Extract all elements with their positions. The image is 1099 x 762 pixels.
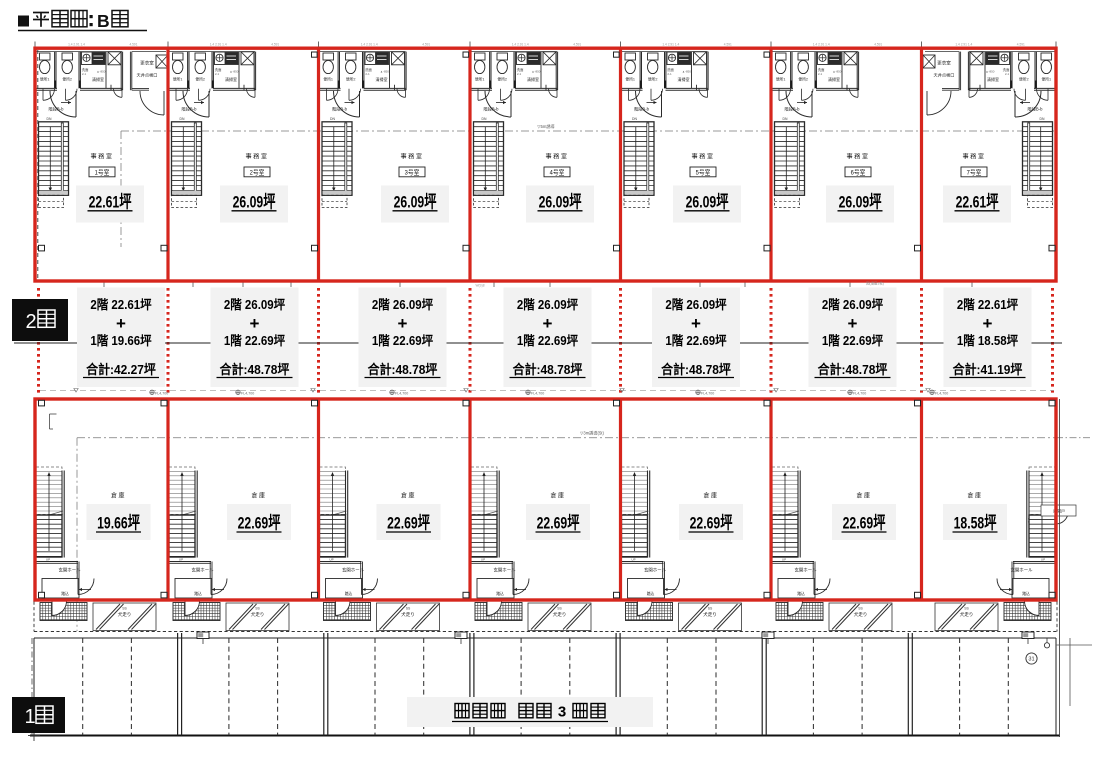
svg-text:便所1: 便所1 [173,77,183,82]
svg-text:4.591: 4.591 [422,43,430,47]
svg-text:犬走り: 犬走り [703,611,717,618]
svg-text:倉庫: 倉庫 [401,492,416,500]
svg-text:+: + [691,314,701,333]
svg-text:+: + [398,314,408,333]
svg-text:26.09坪: 26.09坪 [394,193,437,213]
svg-text:B: B [97,11,110,31]
svg-text:倉庫: 倉庫 [111,492,126,500]
svg-text:便所1: 便所1 [1041,77,1051,82]
svg-text:倉庫: 倉庫 [703,492,718,500]
svg-text:2階 26.09坪: 2階 26.09坪 [822,297,883,313]
svg-text:22.69坪: 22.69坪 [238,514,281,534]
svg-text:倉庫: 倉庫 [967,492,982,500]
svg-text:DN: DN [47,117,52,121]
svg-text:1.4 2.91 1.4: 1.4 2.91 1.4 [512,43,529,47]
svg-text:W(S)8: W(S)8 [475,284,484,288]
svg-text:4.591: 4.591 [573,43,581,47]
svg-text:1.4 2.91 1.4: 1.4 2.91 1.4 [662,43,679,47]
svg-text:便所1: 便所1 [625,77,635,82]
svg-text:階段B-b: 階段B-b [785,106,801,113]
svg-text:1階 22.69坪: 1階 22.69坪 [372,333,433,349]
svg-text:2-1: 2-1 [365,72,370,76]
svg-text:6号室: 6号室 [851,168,866,176]
svg-text:2-1: 2-1 [667,72,672,76]
svg-text:清掃室: 清掃室 [678,76,690,82]
svg-text:清掃室: 清掃室 [527,76,539,82]
svg-text:踏込: 踏込 [61,591,69,596]
svg-text:3: 3 [558,704,566,721]
svg-text:2階 26.09坪: 2階 26.09坪 [517,297,578,313]
svg-text:26.09坪: 26.09坪 [686,193,729,213]
svg-text:倉庫: 倉庫 [550,492,565,500]
svg-text:1階 22.69坪: 1階 22.69坪 [665,333,726,349]
svg-text:1: 1 [24,706,35,728]
svg-text:+: + [116,314,126,333]
svg-text:倉庫: 倉庫 [856,492,871,500]
svg-text:DN: DN [482,117,487,121]
svg-text:+: + [848,314,858,333]
svg-text:犬走り: 犬走り [118,611,132,618]
svg-text:2-1: 2-1 [517,72,522,76]
svg-text:2-1: 2-1 [215,72,220,76]
svg-text:26.09坪: 26.09坪 [233,193,276,213]
svg-text:▲-850: ▲-850 [833,69,842,73]
svg-text:FL4,700: FL4,700 [853,391,866,395]
svg-text:天井点検口: 天井点検口 [934,72,955,79]
svg-text:3号室: 3号室 [405,168,420,176]
svg-text:4.591: 4.591 [724,43,732,47]
svg-text:犬走り: 犬走り [553,611,567,618]
svg-text:踏込: 踏込 [647,591,655,596]
svg-text:UP: UP [179,558,183,562]
svg-text:便所2: 便所2 [497,77,507,82]
svg-text:▲-850: ▲-850 [230,69,239,73]
svg-text:便所2: 便所2 [648,77,658,82]
svg-text:清掃室: 清掃室 [92,76,104,82]
svg-text:SS: SS [964,607,969,611]
svg-text:+: + [250,314,260,333]
svg-text:22.61坪: 22.61坪 [956,193,999,213]
svg-text:洗面: 洗面 [82,67,89,72]
svg-text:▽5m誘導: ▽5m誘導 [537,123,554,130]
svg-text:犬走り: 犬走り [401,611,415,618]
svg-text:便所2: 便所2 [346,77,356,82]
svg-text:便所1: 便所1 [323,77,333,82]
svg-text:合計:48.78坪: 合計:48.78坪 [368,362,438,378]
svg-text:SS: SS [406,607,411,611]
svg-text:事務室: 事務室 [846,153,869,161]
svg-text:1.4 2.91 1.4: 1.4 2.91 1.4 [955,43,972,47]
svg-text:1号室: 1号室 [95,168,110,176]
svg-text:洗面: 洗面 [818,67,825,72]
svg-text:犬走り: 犬走り [251,611,265,618]
svg-text:合計:41.19坪: 合計:41.19坪 [953,362,1023,378]
svg-text:事務室: 事務室 [245,153,268,161]
svg-text:2階 26.09坪: 2階 26.09坪 [224,297,285,313]
svg-text:▲-850: ▲-850 [380,69,389,73]
svg-text:7号室: 7号室 [967,168,982,176]
svg-text:2階 26.09坪: 2階 26.09坪 [372,297,433,313]
svg-text:犬走り: 犬走り [960,611,974,618]
svg-text:1.4 2.91 1.4: 1.4 2.91 1.4 [210,43,227,47]
svg-text:犬走り: 犬走り [854,611,868,618]
svg-text:2号室: 2号室 [250,168,265,176]
svg-text:+: + [543,314,553,333]
svg-text:26.09坪: 26.09坪 [539,193,582,213]
svg-text:1階 18.58坪: 1階 18.58坪 [957,333,1018,349]
svg-text:UP: UP [782,558,786,562]
svg-text:合計:48.78坪: 合計:48.78坪 [661,362,731,378]
svg-text:18.58坪: 18.58坪 [954,514,997,534]
svg-text:4.591: 4.591 [271,43,279,47]
svg-text:便所2: 便所2 [195,77,205,82]
svg-text:合計:48.78坪: 合計:48.78坪 [818,362,888,378]
svg-text:洗面: 洗面 [667,67,674,72]
svg-text:UP: UP [46,558,50,562]
svg-text:2-1: 2-1 [818,72,823,76]
svg-text:4.591: 4.591 [874,43,882,47]
svg-text:洗面: 洗面 [215,67,222,72]
svg-text:清掃室: 清掃室 [376,76,388,82]
svg-text:FL4,700: FL4,700 [935,391,948,395]
svg-text:階段B-b: 階段B-b [182,106,198,113]
svg-text:清掃室: 清掃室 [225,76,237,82]
svg-text:玄関ホール: 玄関ホール [644,567,667,574]
svg-text:1階 22.69坪: 1階 22.69坪 [822,333,883,349]
svg-text:図(漫画1枚): 図(漫画1枚) [866,281,884,286]
svg-text:SS: SS [557,607,562,611]
svg-text:事務室: 事務室 [400,153,423,161]
svg-text:便所2: 便所2 [1019,77,1029,82]
svg-text:玄関ホール: 玄関ホール [494,567,517,574]
svg-text:31: 31 [1028,657,1034,663]
svg-text:▲-850: ▲-850 [986,69,995,73]
svg-text:4.591: 4.591 [130,43,138,47]
svg-text:天井点検口: 天井点検口 [137,72,158,79]
svg-text:踏込: 踏込 [1022,591,1030,596]
svg-text:事務室: 事務室 [90,153,113,161]
svg-text:22.69坪: 22.69坪 [690,514,733,534]
svg-text:2-1: 2-1 [1005,72,1010,76]
svg-text:玄関ホール: 玄関ホール [192,567,215,574]
svg-text:4号室: 4号室 [550,168,565,176]
svg-text:便所2: 便所2 [798,77,808,82]
svg-text:踏込: 踏込 [797,591,805,596]
svg-text:DN: DN [783,117,788,121]
svg-text:SS: SS [708,607,713,611]
svg-text:FL4,700: FL4,700 [155,391,168,395]
svg-text:19.66坪: 19.66坪 [97,514,140,534]
svg-text:階段B-b: 階段B-b [49,106,65,113]
svg-text:玄関ホール: 玄関ホール [795,567,818,574]
svg-text:1階 22.69坪: 1階 22.69坪 [224,333,285,349]
svg-text:▲-850: ▲-850 [532,69,541,73]
svg-text:2: 2 [25,311,36,333]
svg-text:1.4 2.91 1.4: 1.4 2.91 1.4 [68,43,85,47]
svg-text:+: + [983,314,993,333]
svg-text:更衣室: 更衣室 [937,60,951,67]
svg-text:1.4 2.91 1.4: 1.4 2.91 1.4 [361,43,378,47]
svg-text:22.69坪: 22.69坪 [537,514,580,534]
svg-text:2階 26.09坪: 2階 26.09坪 [665,297,726,313]
svg-text:洗面: 洗面 [1003,67,1010,72]
svg-text:2-1: 2-1 [82,72,87,76]
svg-text:合計:48.78坪: 合計:48.78坪 [220,362,290,378]
svg-text:便所1: 便所1 [776,77,786,82]
svg-text:DN: DN [1040,117,1045,121]
svg-text:踏込: 踏込 [345,591,353,596]
svg-text:清掃室: 清掃室 [828,76,840,82]
svg-text:FL4,700: FL4,700 [701,391,714,395]
svg-text:26.09坪: 26.09坪 [839,193,882,213]
svg-text:▲-850: ▲-850 [97,69,106,73]
svg-text:FL4,700: FL4,700 [395,391,408,395]
svg-text:22.69坪: 22.69坪 [843,514,886,534]
svg-text:5号室: 5号室 [696,168,711,176]
svg-text:便所2: 便所2 [62,77,72,82]
svg-text:22.69坪: 22.69坪 [387,514,430,534]
svg-text:玄関ホール: 玄関ホール [59,567,82,574]
svg-text:洗面: 洗面 [517,67,524,72]
svg-text:1階 22.69坪: 1階 22.69坪 [517,333,578,349]
svg-text:UP: UP [631,558,635,562]
svg-text:SS: SS [255,607,260,611]
svg-text:合計:42.27坪: 合計:42.27坪 [86,362,156,378]
svg-text:SS: SS [122,607,127,611]
svg-text:2階 22.61坪: 2階 22.61坪 [957,297,1018,313]
svg-text:▽3m誘導(5t): ▽3m誘導(5t) [580,430,604,437]
svg-text:▲-850: ▲-850 [682,69,691,73]
svg-text:洗面: 洗面 [365,67,372,72]
svg-text:FL4,700: FL4,700 [531,391,544,395]
svg-text:SS: SS [858,607,863,611]
svg-text:FL4,700: FL4,700 [241,391,254,395]
svg-text:UP: UP [329,558,333,562]
svg-text:事務室: 事務室 [545,153,568,161]
svg-text:玄関ホール: 玄関ホール [342,567,365,574]
svg-text:DN: DN [632,117,637,121]
svg-text:階段B-b: 階段B-b [332,106,348,113]
svg-text:便所1: 便所1 [40,77,50,82]
svg-text:階段B-b: 階段B-b [1028,106,1044,113]
svg-text:4.591: 4.591 [1017,43,1025,47]
svg-text:踏込: 踏込 [194,591,202,596]
svg-text:踏込: 踏込 [496,591,504,596]
svg-text:事務室: 事務室 [962,153,985,161]
svg-text:更衣室: 更衣室 [140,60,154,67]
svg-text:階段B-b: 階段B-b [634,106,650,113]
svg-text:DN: DN [330,117,335,121]
svg-text:UP: UP [481,558,485,562]
svg-text:事務室: 事務室 [691,153,714,161]
svg-text:1.4 2.91 1.4: 1.4 2.91 1.4 [813,43,830,47]
svg-text:合計:48.78坪: 合計:48.78坪 [513,362,583,378]
svg-text:1階 19.66坪: 1階 19.66坪 [90,333,151,349]
svg-text:階段B-b: 階段B-b [484,106,500,113]
svg-text:倉庫: 倉庫 [251,492,266,500]
svg-text:UP: UP [1041,558,1045,562]
svg-text:22.61坪: 22.61坪 [89,193,132,213]
svg-text:清掃室: 清掃室 [987,76,999,82]
svg-text:玄関ホール: 玄関ホール [1011,567,1034,574]
svg-text:2階 22.61坪: 2階 22.61坪 [90,297,151,313]
svg-text:DN: DN [180,117,185,121]
svg-text:便所1: 便所1 [475,77,485,82]
